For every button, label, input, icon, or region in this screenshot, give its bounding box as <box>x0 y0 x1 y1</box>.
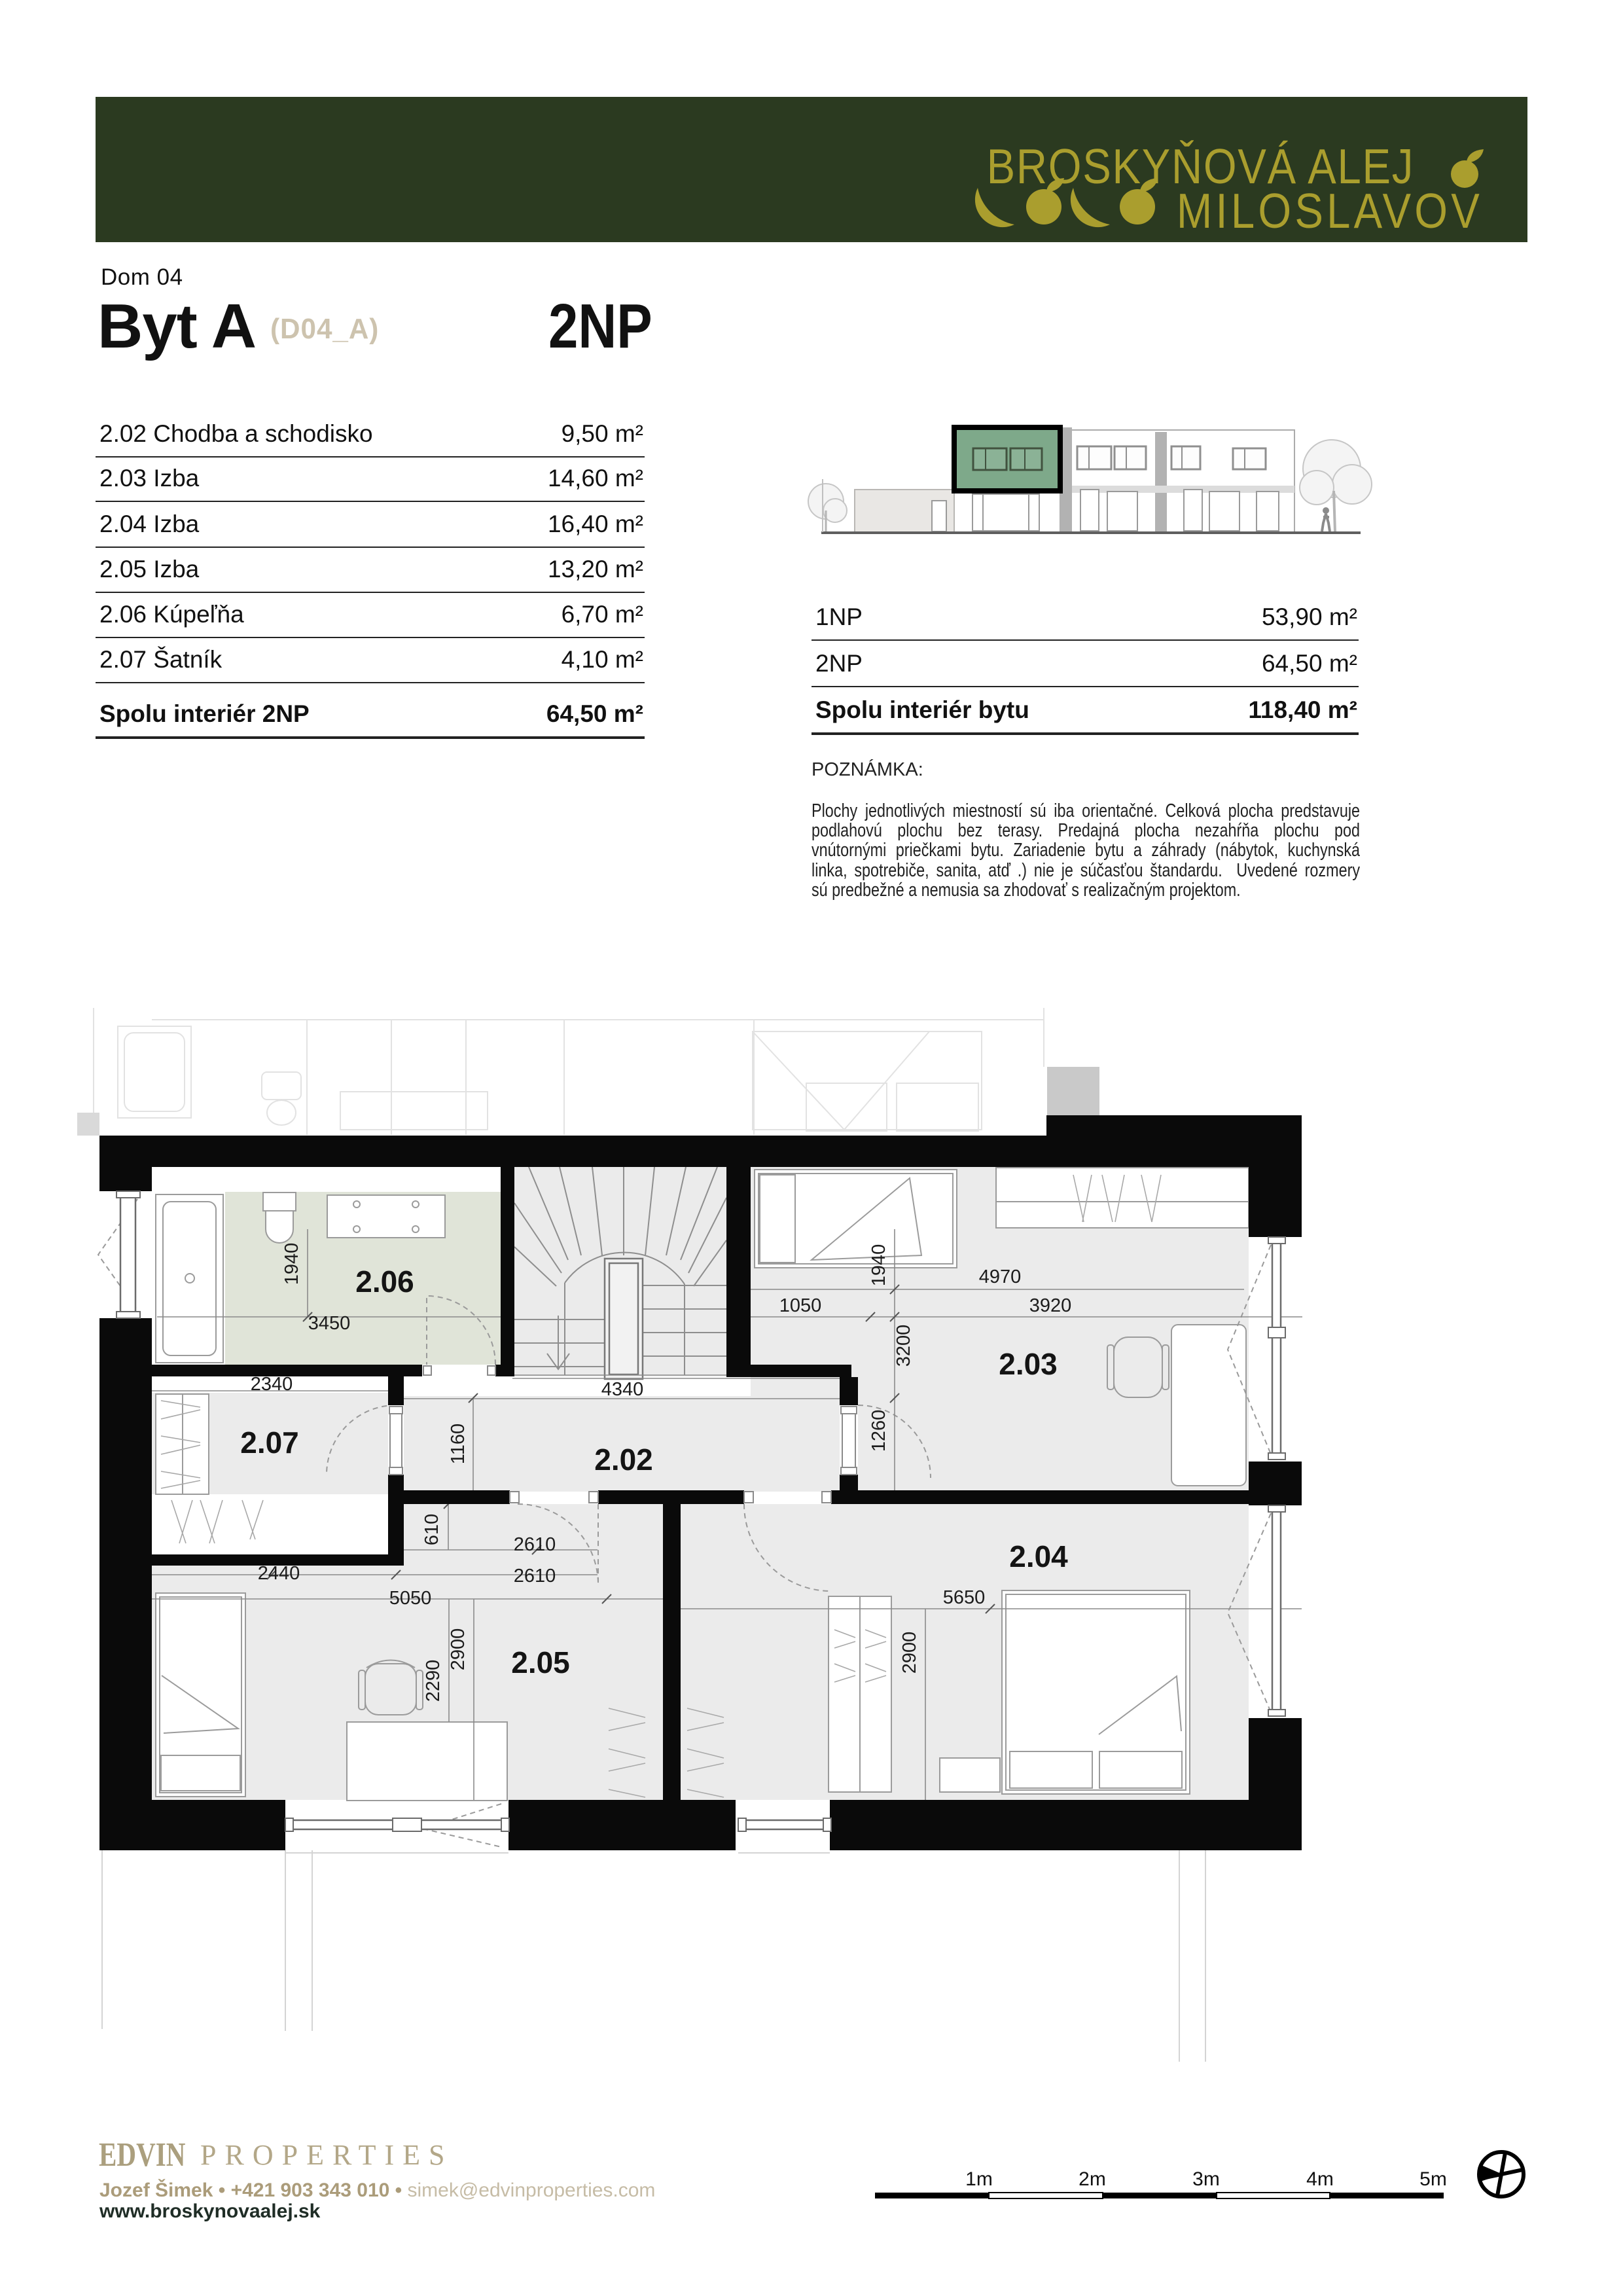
svg-text:2.03: 2.03 <box>999 1347 1058 1381</box>
svg-text:1940: 1940 <box>868 1244 889 1287</box>
svg-text:2610: 2610 <box>514 1534 556 1555</box>
svg-text:2340: 2340 <box>251 1374 293 1395</box>
svg-text:2.05: 2.05 <box>511 1645 570 1679</box>
svg-text:1940: 1940 <box>281 1243 302 1285</box>
svg-text:2.02: 2.02 <box>594 1443 653 1477</box>
svg-text:5m: 5m <box>1419 2168 1447 2190</box>
svg-text:1160: 1160 <box>448 1424 469 1464</box>
svg-text:2610: 2610 <box>514 1566 556 1587</box>
svg-text:3m: 3m <box>1192 2168 1220 2190</box>
svg-text:1m: 1m <box>965 2168 993 2190</box>
svg-text:1260: 1260 <box>868 1410 889 1452</box>
svg-text:4970: 4970 <box>979 1266 1022 1287</box>
svg-text:4m: 4m <box>1306 2168 1334 2190</box>
svg-text:2.07: 2.07 <box>240 1426 299 1460</box>
svg-text:3200: 3200 <box>893 1325 914 1367</box>
svg-text:1050: 1050 <box>779 1295 822 1316</box>
svg-text:2440: 2440 <box>258 1563 300 1584</box>
svg-text:2.04: 2.04 <box>1009 1539 1068 1573</box>
svg-text:4340: 4340 <box>601 1379 644 1400</box>
svg-text:2290: 2290 <box>423 1660 444 1702</box>
svg-text:2900: 2900 <box>448 1628 469 1671</box>
svg-text:2.06: 2.06 <box>355 1265 414 1299</box>
svg-text:610: 610 <box>421 1514 442 1545</box>
svg-text:3920: 3920 <box>1029 1295 1072 1316</box>
svg-text:2900: 2900 <box>899 1632 920 1674</box>
svg-text:5050: 5050 <box>389 1588 432 1609</box>
svg-text:2m: 2m <box>1079 2168 1106 2190</box>
svg-text:3450: 3450 <box>308 1313 351 1334</box>
svg-text:5650: 5650 <box>943 1587 986 1608</box>
